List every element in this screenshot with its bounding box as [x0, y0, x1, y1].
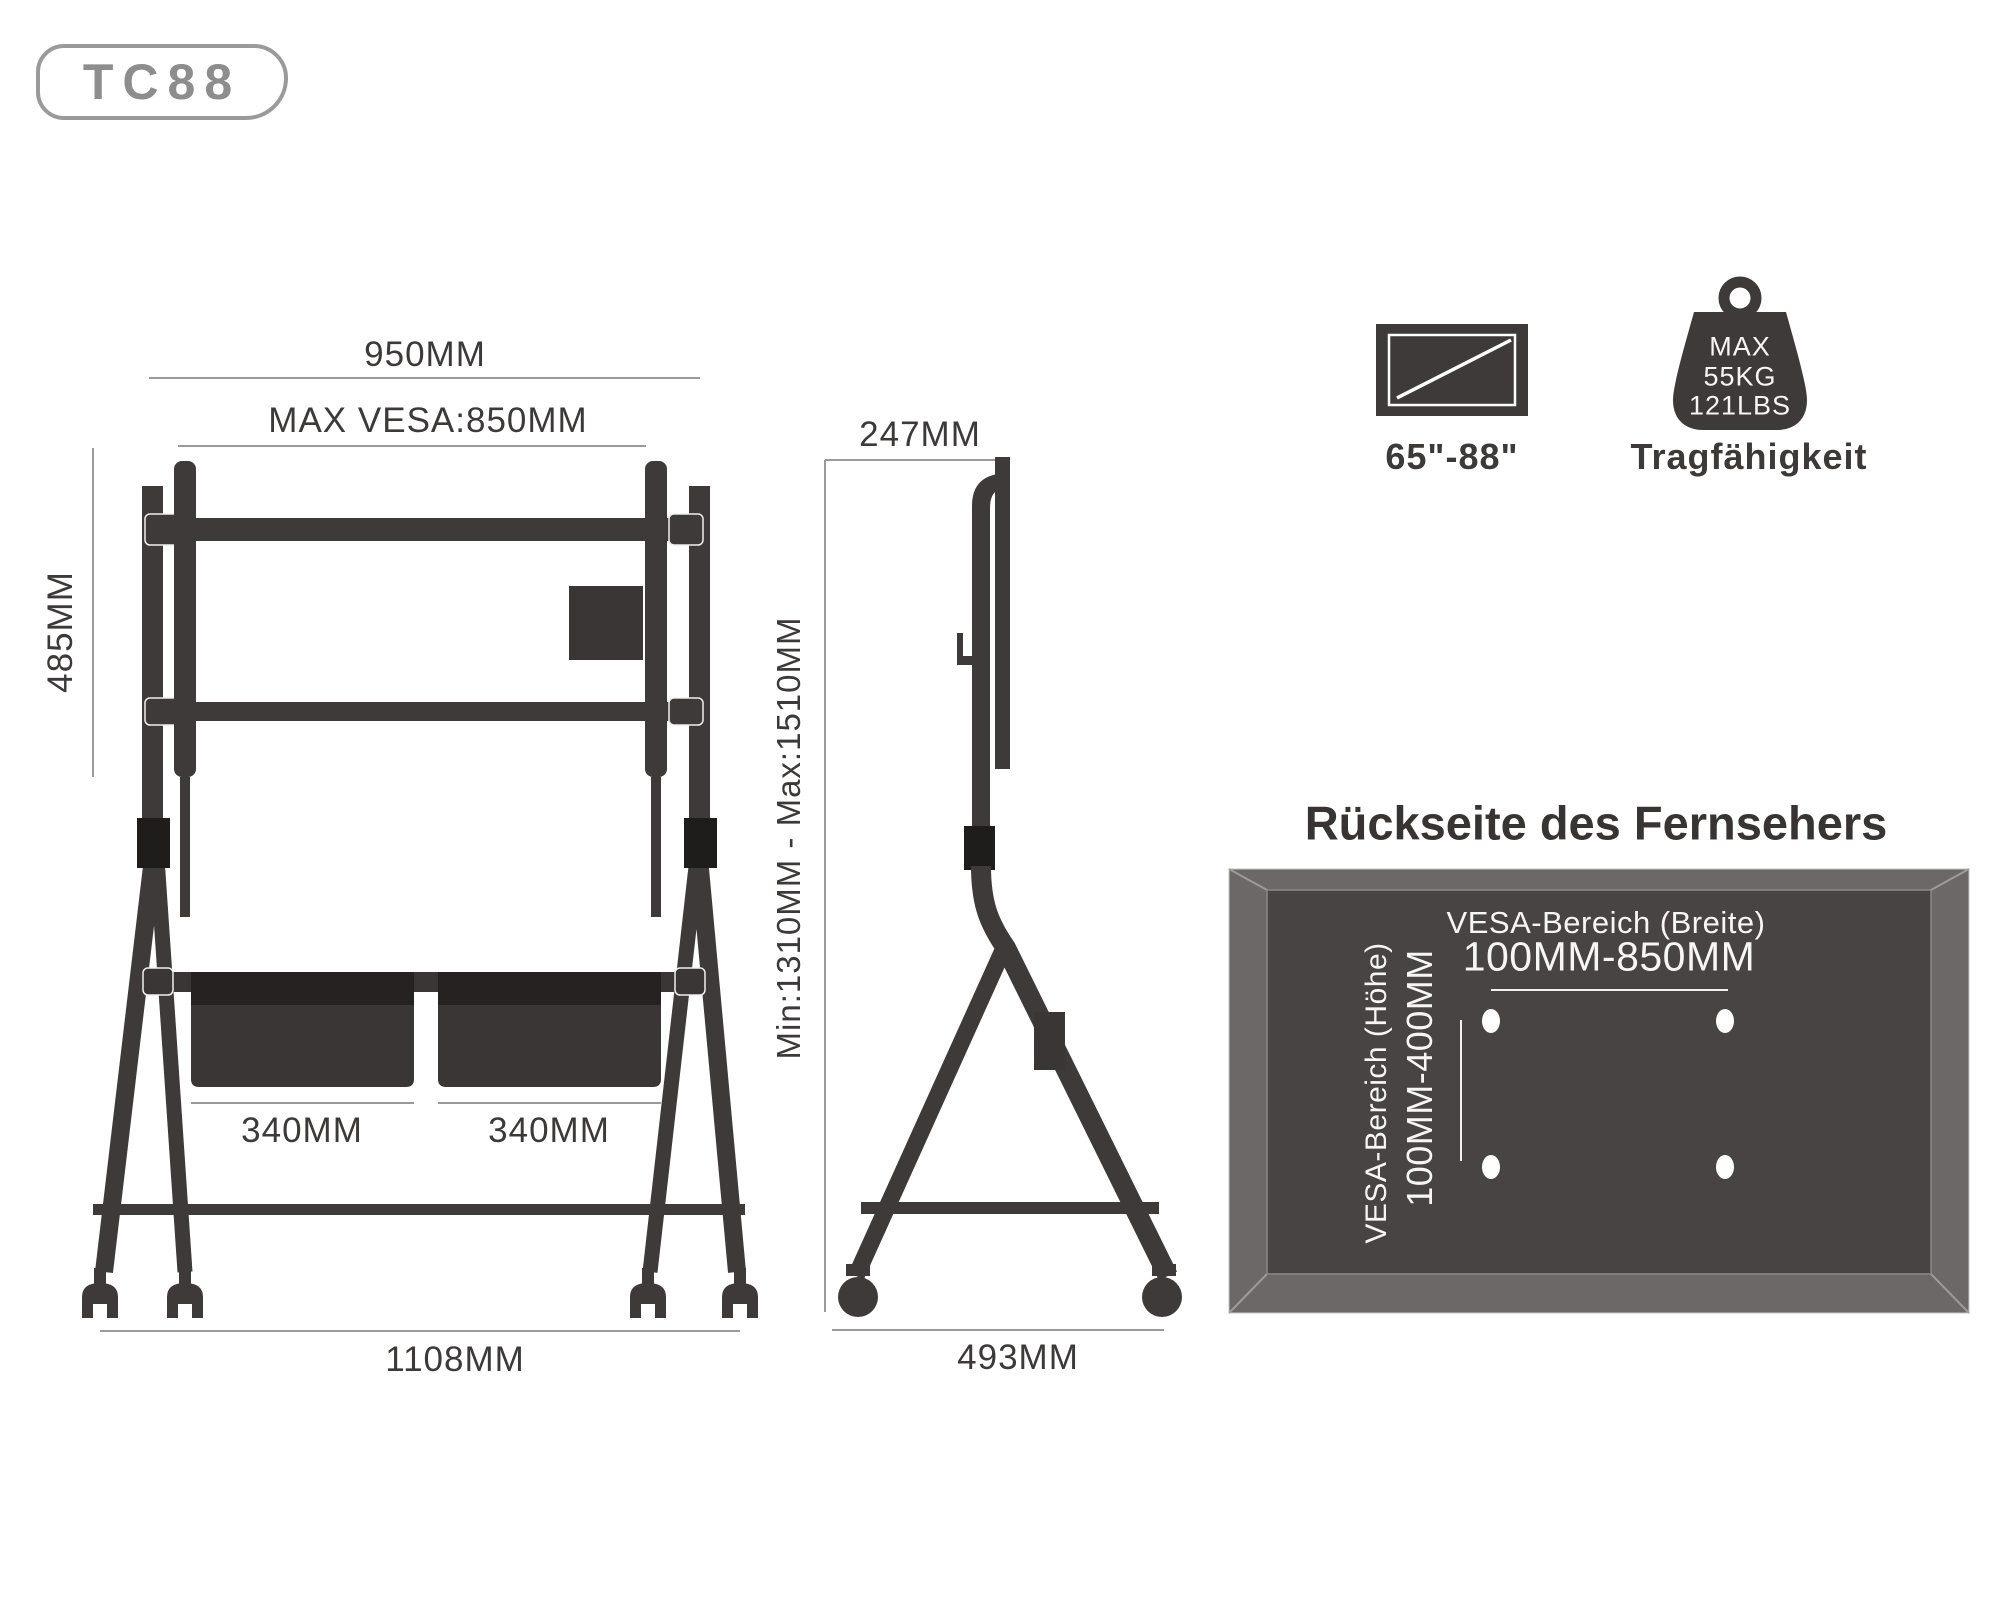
side-casters: [838, 1264, 1182, 1317]
tv-cart-spec-sheet: TC88 950MM MAX VESA:850MM 485MM 340MM 34…: [0, 0, 2000, 1600]
model-badge-label: TC88: [83, 53, 241, 111]
front-upright-posts: [142, 486, 710, 864]
screen-size-icon: [1376, 324, 1528, 416]
side-view-drawing: [825, 457, 1182, 1330]
back-panel-title: Rückseite des Fernsehers: [1305, 796, 1888, 851]
dim-max-vesa: MAX VESA:850MM: [268, 401, 587, 441]
vesa-height-value: 100MM-400MM: [1399, 949, 1441, 1207]
weight-lbs-text: 121LBS: [1689, 391, 1791, 422]
vesa-width-value: 100MM-850MM: [1463, 934, 1756, 981]
camera-shelf-box: [569, 586, 643, 660]
dim-basket-right: 340MM: [488, 1111, 610, 1151]
side-hook: [957, 633, 973, 665]
side-rear-leg: [981, 866, 1168, 1276]
dim-bracket-height: 485MM: [41, 571, 81, 693]
side-column: [972, 474, 998, 868]
front-view-drawing: [82, 378, 758, 1331]
side-bottom-crossbar: [861, 1202, 1159, 1214]
side-basket-profile: [1034, 1012, 1065, 1070]
dim-base-depth: 493MM: [957, 1338, 1079, 1378]
weight-capacity-label: Tragfähigkeit: [1630, 436, 1867, 478]
front-bottom-crossbar: [93, 1204, 745, 1215]
weight-max-text: MAX: [1709, 332, 1771, 363]
dim-top-width: 950MM: [364, 335, 486, 375]
dim-height-range: Min:1310MM - Max:1510MM: [770, 617, 808, 1060]
front-casters: [82, 1268, 758, 1318]
screen-size-label: 65"-88": [1385, 436, 1518, 478]
model-badge: TC88: [36, 44, 288, 120]
front-clamps: [137, 818, 717, 868]
dim-base-width: 1108MM: [385, 1340, 525, 1380]
vesa-height-label: VESA-Bereich (Höhe): [1360, 942, 1394, 1243]
tv-panel-profile: [995, 457, 1010, 769]
dim-top-depth: 247MM: [859, 415, 981, 455]
dim-basket-left: 340MM: [241, 1111, 363, 1151]
side-clamp: [964, 826, 995, 870]
side-dimension-lines: [825, 460, 1164, 1330]
weight-kg-text: 55KG: [1703, 362, 1776, 393]
side-front-leg: [856, 948, 1004, 1276]
